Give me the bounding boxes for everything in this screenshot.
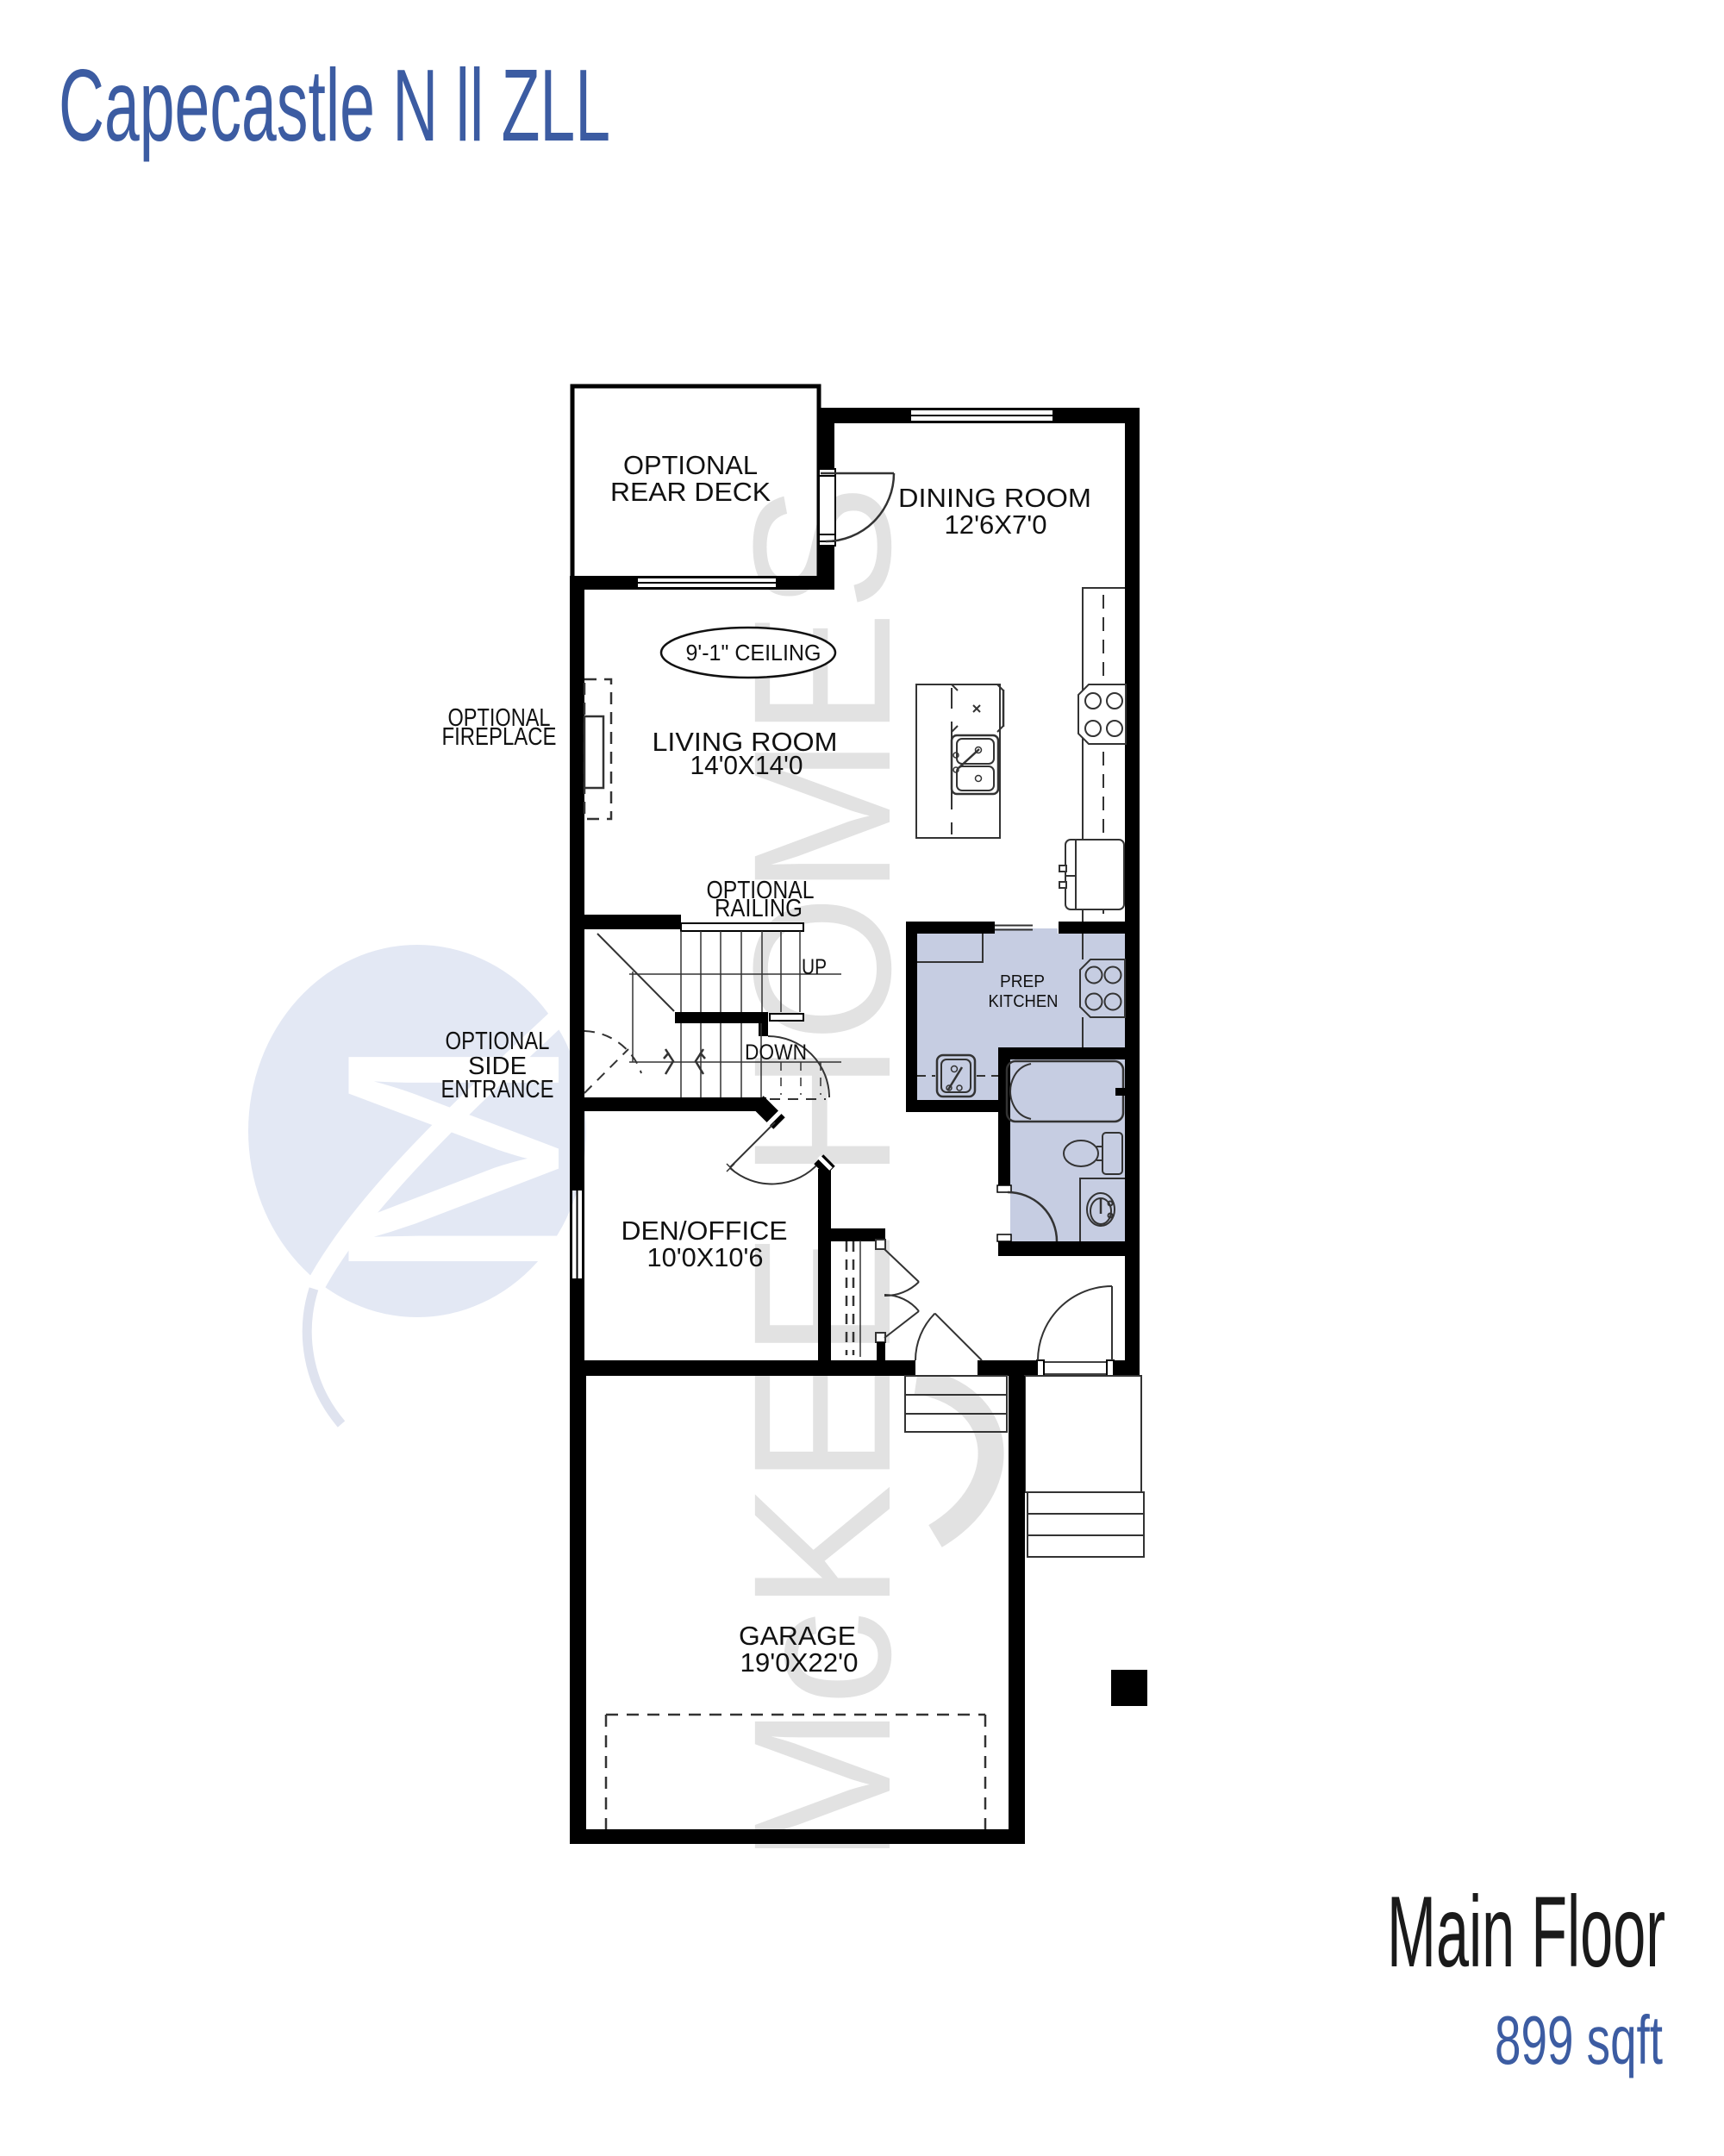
svg-text:GARAGE: GARAGE [739,1621,856,1651]
svg-text:9'-1" CEILING: 9'-1" CEILING [686,640,821,666]
svg-text:KITCHEN: KITCHEN [989,992,1059,1011]
svg-text:19'0X22'0: 19'0X22'0 [740,1647,859,1678]
svg-text:REAR DECK: REAR DECK [610,477,771,507]
svg-text:ENTRANCE: ENTRANCE [441,1076,554,1103]
svg-text:DEN/OFFICE: DEN/OFFICE [622,1215,788,1246]
svg-text:Capecastle N ll ZLL: Capecastle N ll ZLL [59,48,610,163]
svg-text:OPTIONAL: OPTIONAL [623,450,758,480]
svg-text:UP: UP [802,955,827,979]
svg-text:899 sqft: 899 sqft [1495,2002,1663,2078]
svg-text:RAILING: RAILING [715,895,803,922]
svg-text:10'0X10'6: 10'0X10'6 [647,1242,764,1272]
svg-text:14'0X14'0: 14'0X14'0 [690,750,803,780]
svg-text:FIREPLACE: FIREPLACE [442,723,557,751]
svg-text:12'6X7'0: 12'6X7'0 [945,509,1047,540]
svg-text:Main Floor: Main Floor [1387,1875,1665,1988]
svg-text:PREP: PREP [1000,972,1045,991]
svg-text:DOWN: DOWN [745,1041,807,1065]
svg-text:DINING ROOM: DINING ROOM [898,483,1091,513]
svg-text:OPTIONAL: OPTIONAL [446,1028,550,1055]
